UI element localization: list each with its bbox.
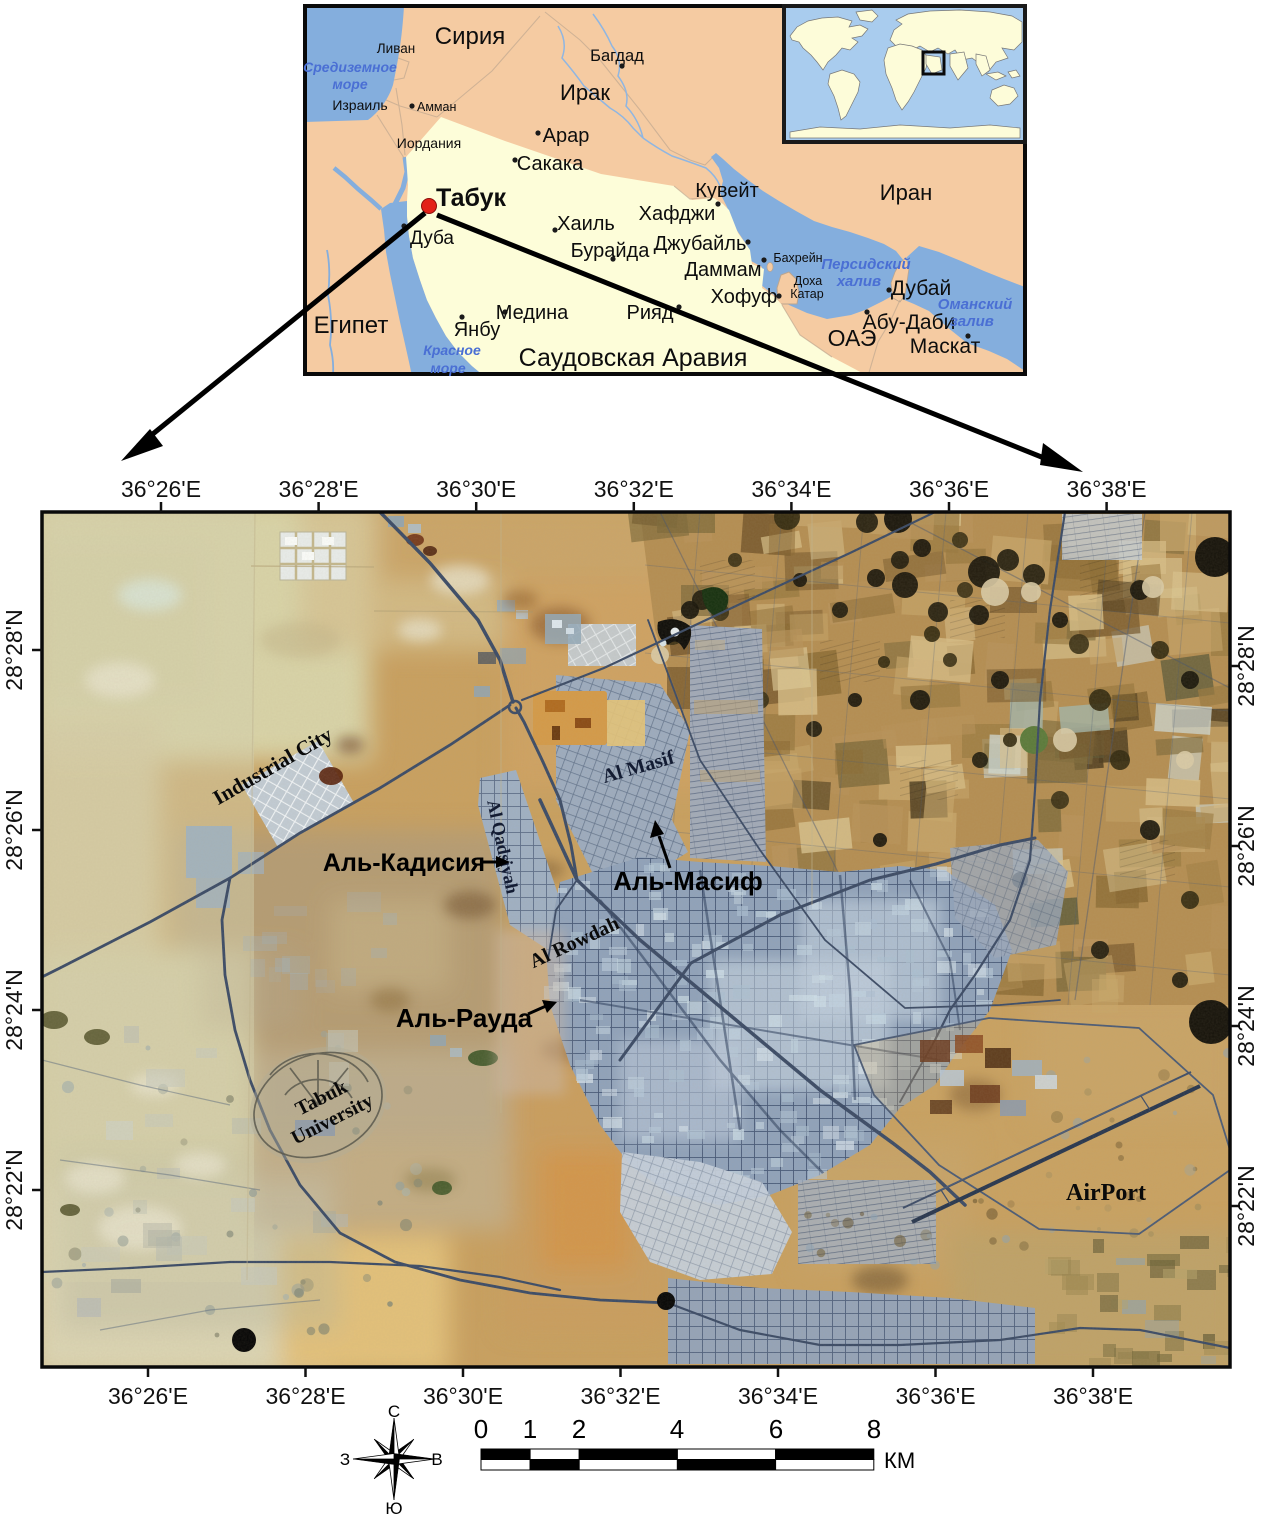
- svg-text:Багдад: Багдад: [590, 47, 644, 65]
- svg-text:Маскат: Маскат: [910, 335, 981, 358]
- svg-text:0: 0: [474, 1414, 488, 1444]
- svg-text:Ирак: Ирак: [560, 80, 610, 105]
- svg-text:Хофуф: Хофуф: [711, 286, 778, 308]
- svg-text:халив: халив: [836, 273, 881, 290]
- svg-text:36°36'E: 36°36'E: [895, 1383, 975, 1409]
- svg-text:36°34'E: 36°34'E: [751, 476, 831, 502]
- svg-text:Израиль: Израиль: [332, 97, 387, 113]
- svg-text:Аль-Кадисия: Аль-Кадисия: [323, 849, 485, 877]
- svg-text:28°28'N: 28°28'N: [1, 609, 27, 690]
- svg-text:Джубайль: Джубайль: [654, 233, 747, 255]
- svg-text:Иордания: Иордания: [397, 135, 461, 151]
- svg-text:1: 1: [523, 1414, 537, 1444]
- svg-text:Бурайда: Бурайда: [571, 240, 651, 262]
- svg-text:Сирия: Сирия: [435, 23, 506, 50]
- svg-text:С: С: [388, 1402, 400, 1421]
- svg-text:28°24'N: 28°24'N: [1, 969, 27, 1050]
- svg-text:4: 4: [670, 1414, 684, 1444]
- svg-text:Даммам: Даммам: [684, 259, 761, 281]
- svg-text:36°36'E: 36°36'E: [909, 476, 989, 502]
- svg-text:28°26'N: 28°26'N: [1, 789, 27, 870]
- svg-text:Амман: Амман: [417, 100, 456, 114]
- svg-text:Медина: Медина: [496, 302, 569, 324]
- svg-text:36°28'E: 36°28'E: [279, 476, 359, 502]
- svg-text:Средиземное: Средиземное: [303, 59, 397, 75]
- svg-text:36°38'E: 36°38'E: [1067, 476, 1147, 502]
- svg-text:8: 8: [867, 1414, 881, 1444]
- svg-text:36°32'E: 36°32'E: [580, 1383, 660, 1409]
- svg-text:В: В: [431, 1450, 442, 1469]
- svg-text:Катар: Катар: [790, 287, 823, 301]
- svg-text:КМ: КМ: [884, 1448, 915, 1473]
- svg-text:море: море: [332, 76, 367, 92]
- svg-text:Саудовская Аравия: Саудовская Аравия: [519, 344, 748, 372]
- svg-text:Табук: Табук: [436, 184, 507, 212]
- svg-text:36°26'E: 36°26'E: [108, 1383, 188, 1409]
- svg-text:Аль-Масиф: Аль-Масиф: [613, 866, 763, 896]
- svg-text:28°22'N: 28°22'N: [1, 1149, 27, 1230]
- svg-text:Оманский: Оманский: [938, 296, 1013, 313]
- svg-text:ОАЭ: ОАЭ: [828, 325, 877, 351]
- svg-text:36°32'E: 36°32'E: [594, 476, 674, 502]
- svg-text:Хафджи: Хафджи: [639, 203, 716, 225]
- svg-text:AirPort: AirPort: [1066, 1180, 1146, 1206]
- svg-text:З: З: [340, 1450, 350, 1469]
- svg-text:Бахрейн: Бахрейн: [773, 251, 822, 265]
- svg-text:море: море: [430, 360, 465, 376]
- svg-text:36°38'E: 36°38'E: [1053, 1383, 1133, 1409]
- svg-text:36°28'E: 36°28'E: [265, 1383, 345, 1409]
- svg-text:Аль-Рауда: Аль-Рауда: [396, 1003, 533, 1033]
- svg-text:Доха: Доха: [794, 274, 823, 288]
- svg-text:Арар: Арар: [543, 125, 590, 147]
- svg-text:36°30'E: 36°30'E: [436, 476, 516, 502]
- svg-text:6: 6: [769, 1414, 783, 1444]
- svg-text:36°26'E: 36°26'E: [121, 476, 201, 502]
- svg-text:36°34'E: 36°34'E: [738, 1383, 818, 1409]
- svg-text:Иран: Иран: [880, 180, 932, 205]
- svg-text:Янбу: Янбу: [454, 319, 501, 341]
- svg-text:Сакака: Сакака: [517, 153, 584, 175]
- svg-text:Дуба: Дуба: [410, 228, 454, 249]
- svg-text:залив: залив: [950, 313, 994, 330]
- svg-text:Ливан: Ливан: [377, 41, 415, 56]
- svg-text:Абу-Даби: Абу-Даби: [863, 311, 956, 334]
- svg-text:Египет: Египет: [314, 312, 389, 339]
- svg-text:Ю: Ю: [385, 1499, 402, 1518]
- svg-text:2: 2: [572, 1414, 586, 1444]
- svg-text:Персидский: Персидский: [821, 256, 910, 273]
- svg-text:Хаиль: Хаиль: [557, 213, 615, 235]
- svg-text:36°30'E: 36°30'E: [423, 1383, 503, 1409]
- svg-text:Красное: Красное: [423, 342, 481, 358]
- svg-text:Кувейт: Кувейт: [695, 180, 759, 202]
